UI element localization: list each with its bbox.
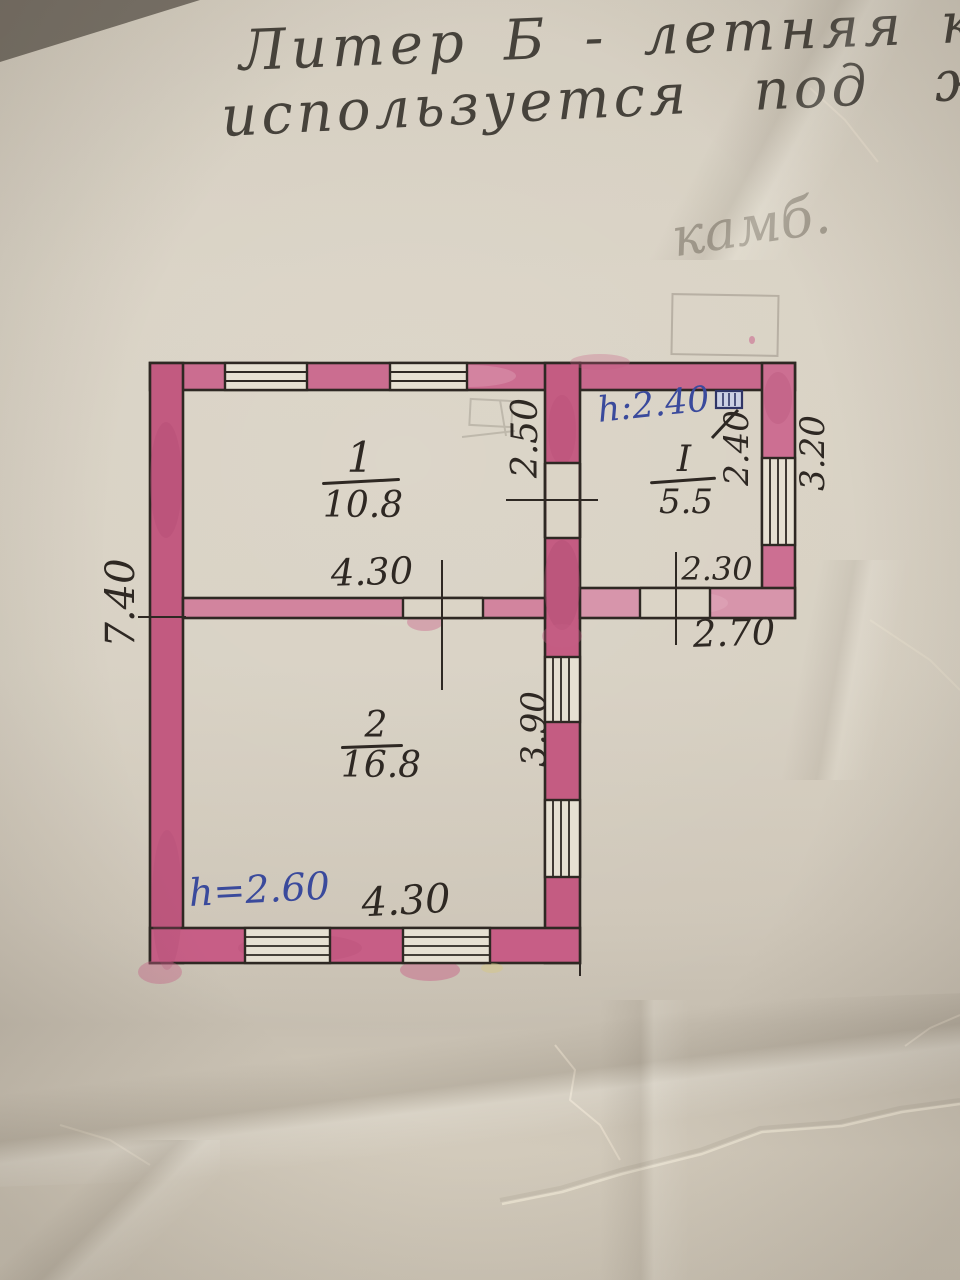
annex-ext-depth-dim: 3.20	[796, 415, 830, 491]
window-room2-bottom-1	[245, 928, 330, 963]
room2-depth-dim: 3.90	[517, 691, 551, 767]
wall-bottom-main	[150, 928, 580, 963]
window-room2-bottom-2	[403, 928, 490, 963]
wall-interior-1-2	[183, 598, 545, 618]
annex-depth-dim: 2.40	[720, 410, 754, 486]
overall-depth-dim: 7.40	[101, 558, 141, 647]
room2-area: 16.8	[341, 748, 421, 784]
room1-area: 10.8	[323, 488, 403, 524]
annex-width-dim: 2.30	[681, 553, 752, 585]
room1-width-dim: 4.30	[330, 552, 414, 592]
room1-number: 1	[347, 437, 374, 479]
paper-creases-cracks	[60, 88, 960, 1204]
room2-ceiling-height: h=2.60	[188, 867, 331, 912]
window-annex-right	[762, 458, 795, 545]
window-room1-top-2	[390, 363, 467, 390]
window-room1-top-1	[225, 363, 307, 390]
floor-plan-photo: Литер Б - летняя кух используется под жи…	[0, 0, 960, 1280]
annex-number: I	[677, 442, 691, 478]
annex-ext-width-dim: 2.70	[692, 613, 776, 653]
annex-area: 5.5	[659, 485, 713, 519]
room2-width-dim: 4.30	[360, 879, 451, 924]
room1-depth-dim: 2.50	[508, 398, 544, 478]
pencil-rectangle	[671, 294, 778, 356]
room2-number: 2	[365, 708, 388, 744]
window-room2-right-2	[545, 800, 580, 877]
